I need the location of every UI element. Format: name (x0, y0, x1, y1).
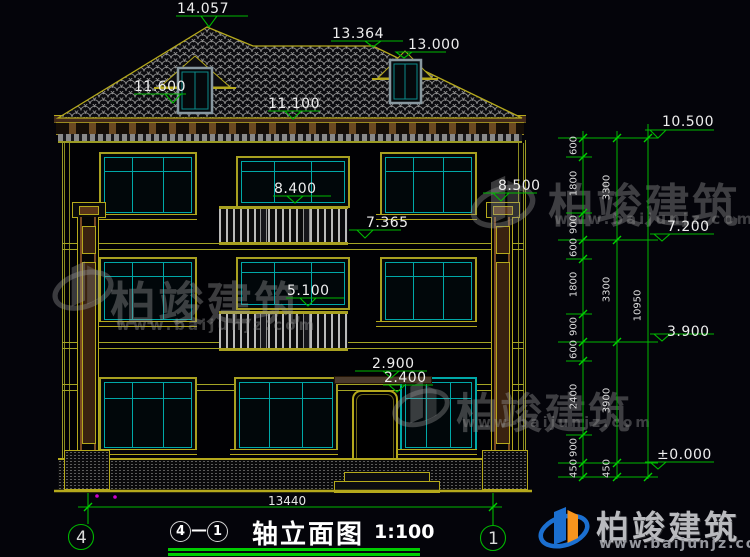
watermark-url: www.baijunjz.com (116, 316, 317, 334)
window-2f-right (380, 257, 477, 325)
pilaster-capital-left (72, 202, 106, 218)
title-axis-to: 1 (207, 521, 228, 542)
window-3f-right (380, 152, 477, 218)
brand-logo-icon (536, 499, 592, 555)
dim-value: 3300 (602, 166, 613, 210)
axis-bubble-4: 4 (76, 528, 87, 548)
dim-value: 450 (602, 447, 613, 491)
watermark-url: www.baijunjz.com (462, 415, 653, 431)
window-1f-left (99, 377, 197, 453)
elev-label: ±0.000 (657, 447, 712, 463)
cad-elevation-drawing: 柏竣建筑 www.baijunjz.com 柏竣建筑 www.baijunjz.… (0, 0, 750, 557)
elev-label: 13.364 (332, 26, 384, 42)
plinth-base (58, 458, 524, 492)
dim-value: 2400 (569, 375, 580, 419)
elev-label: 7.200 (667, 219, 710, 235)
watermark-logo-icon (468, 166, 538, 236)
sill-1f-left (95, 449, 197, 455)
dim-value: 1800 (569, 162, 580, 206)
axis-bubble-1: 1 (488, 529, 499, 549)
entrance-step-lower (334, 481, 440, 493)
title-dash: — (191, 520, 207, 539)
node-point (95, 494, 99, 498)
elev-label: 7.365 (366, 215, 409, 231)
title-axis-from: 4 (170, 521, 191, 542)
brand-logo-url: www.baijunjz.com (599, 536, 750, 552)
elev-label: 13.000 (408, 37, 460, 53)
node-point (113, 495, 117, 499)
elev-label: 8.500 (498, 178, 541, 194)
pedestal-left (64, 450, 110, 490)
cornice-dentil-band (58, 134, 522, 143)
dim-value: 3300 (602, 268, 613, 312)
title-scale: 1:100 (374, 521, 434, 543)
drawing-title: 4—1 (170, 520, 228, 542)
title-text: 轴立面图 (252, 514, 364, 551)
pilaster-panel (82, 226, 96, 254)
elev-label: 2.400 (384, 370, 427, 386)
window-3f-left (99, 152, 197, 218)
dim-value: 450 (569, 447, 580, 491)
dim-value: 1800 (569, 263, 580, 307)
sill-1f-right (396, 449, 477, 455)
dim-value: 3900 (602, 379, 613, 423)
elev-label: 11.600 (134, 79, 186, 95)
sill-1f-center (230, 449, 338, 455)
sill-3f-left (95, 214, 197, 220)
dim-value-width: 13440 (268, 494, 306, 508)
pedestal-right (482, 450, 528, 490)
dim-value: 600 (569, 328, 580, 372)
watermark-url: www.baijunjz.com (554, 210, 750, 228)
elev-label: 11.100 (268, 96, 320, 112)
elev-label: 14.057 (177, 1, 229, 17)
dim-value-overall: 10950 (633, 284, 644, 328)
elev-label: 8.400 (274, 181, 317, 197)
elev-label: 5.100 (287, 283, 330, 299)
sill-2f-right (376, 321, 477, 327)
window-1f-center (234, 377, 338, 453)
watermark-logo-icon (50, 252, 116, 318)
elev-label: 10.500 (662, 114, 714, 130)
elev-label: 3.900 (667, 324, 710, 340)
balcony-3f-railing (219, 206, 348, 245)
